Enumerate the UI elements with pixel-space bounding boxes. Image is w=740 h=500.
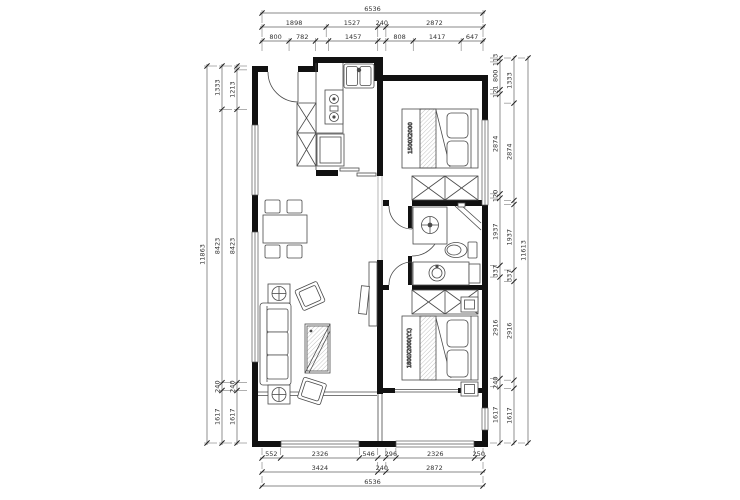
wall-bath-stub (383, 285, 389, 290)
dim-strip-top-mid: 189815272402872 (259, 19, 485, 37)
dim-value: 8423 (229, 238, 237, 255)
wall-bath-west-upper (408, 206, 412, 228)
dim-value: 1617 (229, 408, 237, 425)
dim-value: 2872 (426, 464, 443, 472)
armchair-bottom (297, 377, 327, 405)
kitchen-fridge (317, 134, 344, 166)
dim-value: 1213 (229, 81, 237, 98)
dim-value: 240 (214, 380, 222, 392)
dim-value: 2916 (506, 323, 514, 340)
dim-value: 2326 (312, 450, 329, 458)
dim-value: 800 (269, 33, 281, 41)
tall-cabinet (297, 133, 316, 166)
dim-value: 800 (492, 70, 500, 82)
dim-value: 2874 (492, 136, 500, 153)
wall-right-upper (482, 75, 488, 120)
nightstand-top (461, 297, 478, 312)
entry-door (268, 72, 298, 102)
dim-value: 1417 (429, 33, 446, 41)
bed2-size-label: 1800X2000(Y.Y.) (407, 328, 413, 368)
dim-strip-bottom-mid: 34242402872 (259, 462, 485, 475)
dim-value: 8423 (214, 238, 222, 255)
tv-screen (359, 286, 370, 315)
dining-chair (265, 245, 280, 258)
tv-unit (359, 262, 377, 326)
floor-plan-canvas: 1500X2000 (0, 0, 740, 500)
bedroom1-closet (412, 176, 478, 200)
wall-bottom-center (359, 441, 396, 447)
dim-value: 1898 (286, 19, 303, 27)
dim-strip-top-inner: 80078214578081417647 (259, 33, 485, 51)
dim-value: 1333 (506, 72, 514, 89)
dim-strip-right-total: 11613 (518, 55, 531, 445)
kitchen-stove (325, 90, 343, 124)
window-bottom-living (281, 441, 359, 447)
wall-right-middle (482, 205, 488, 408)
pillow (447, 141, 468, 166)
faucet-icon (357, 68, 361, 72)
dim-value: 552 (265, 450, 277, 458)
wall-center-upper (377, 57, 383, 176)
wall-left-middle (252, 195, 258, 232)
window-left-living (252, 232, 258, 362)
bed1: 1500X2000 (402, 109, 478, 168)
dim-value: 1527 (344, 19, 361, 27)
nightstand-bottom (461, 382, 478, 396)
coffee-table (305, 324, 330, 373)
dining-chair (265, 200, 280, 213)
entry-cabinets (297, 103, 316, 166)
dim-value: 2916 (492, 319, 500, 336)
dim-value: 1937 (506, 229, 514, 246)
sofa (260, 303, 291, 385)
bathroom (413, 203, 481, 285)
kitchen-sliding-door (340, 168, 376, 176)
dining-chair (287, 200, 302, 213)
wall-kitchen-top (316, 57, 380, 63)
wall-bottom-right (474, 441, 488, 447)
window-bottom-bedroom2 (396, 441, 474, 447)
dim-value: 11863 (199, 244, 207, 265)
pillow (447, 320, 468, 347)
dim-value: 2326 (427, 450, 444, 458)
wall-left-lower (252, 362, 258, 447)
pillow (447, 350, 468, 377)
bedroom1: 1500X2000 (402, 109, 478, 200)
pillow (447, 113, 468, 138)
window-right-balcony (482, 408, 488, 430)
tv-console (369, 262, 377, 326)
vanity (413, 262, 469, 285)
kitchen-sink (344, 64, 374, 88)
dim-value: 1617 (506, 407, 514, 424)
living-room (260, 262, 377, 405)
dim-value: 2872 (426, 19, 443, 27)
dining-table (263, 215, 307, 243)
dim-value: 546 (362, 450, 374, 458)
bed2: 1800X2000(Y.Y.) (402, 316, 478, 380)
wall-bed2-balcony-stub-left (383, 388, 395, 393)
dim-strip-right-inner: 1138001212874120193733729162401617 (490, 54, 503, 446)
dim-value: 240 (376, 464, 388, 472)
dim-strip-bottom-inner: 55223265462962326250 (259, 448, 485, 461)
dim-value: 782 (296, 33, 308, 41)
bedroom2: 1800X2000(Y.Y.) (402, 290, 478, 396)
window-right-bedroom1 (482, 120, 488, 205)
floor-plan-viewer: 1500X2000 (0, 0, 740, 500)
corner-shelf (455, 206, 481, 230)
side-table-plant-bottom (268, 385, 290, 404)
dim-value: 6536 (364, 478, 381, 486)
wall-bath-west-lower (408, 256, 412, 285)
wall-kitchen-bottom (316, 170, 338, 176)
bath-faucet (458, 203, 465, 207)
side-table-plant-top (268, 284, 290, 303)
dim-value: 808 (393, 33, 405, 41)
dining-chair (287, 245, 302, 258)
bed1-size-label: 1500X2000 (408, 122, 414, 154)
dim-value: 1617 (492, 407, 500, 424)
dim-value: 3424 (312, 464, 329, 472)
dim-value: 240 (229, 380, 237, 392)
dim-strip-right-mid: 13332874193733729161617 (504, 55, 517, 445)
wall-bedroom1-bottom (412, 200, 482, 206)
wall-bath-bottom (412, 285, 482, 290)
dim-value: 1937 (492, 223, 500, 240)
bath-cabinet (469, 264, 480, 283)
dim-value: 6536 (364, 5, 381, 13)
dining-set (263, 200, 307, 258)
dim-value: 1333 (214, 79, 222, 96)
dim-value: 1457 (345, 33, 362, 41)
window-left-dining (252, 125, 258, 195)
wall-left-upper (252, 66, 258, 125)
wall-bottom-left (252, 441, 281, 447)
dim-value: 1617 (214, 408, 222, 425)
dim-value: 647 (466, 33, 478, 41)
dim-value: 2874 (506, 143, 514, 160)
dim-value: 240 (376, 19, 388, 27)
toilet (445, 242, 477, 258)
dim-strip-bottom-total: 6536 (259, 476, 485, 489)
dim-value: 11613 (520, 240, 528, 261)
wall-bedroom1-stub (383, 200, 389, 206)
wall-bedroom1-top (380, 75, 488, 81)
shower-area (413, 207, 447, 244)
armchair-top (295, 281, 326, 311)
dim-strip-left-inner: 121384232401617 (229, 63, 248, 445)
shoe-cabinet (297, 103, 316, 133)
kitchen (316, 63, 374, 166)
wall-center-lower (377, 260, 383, 394)
